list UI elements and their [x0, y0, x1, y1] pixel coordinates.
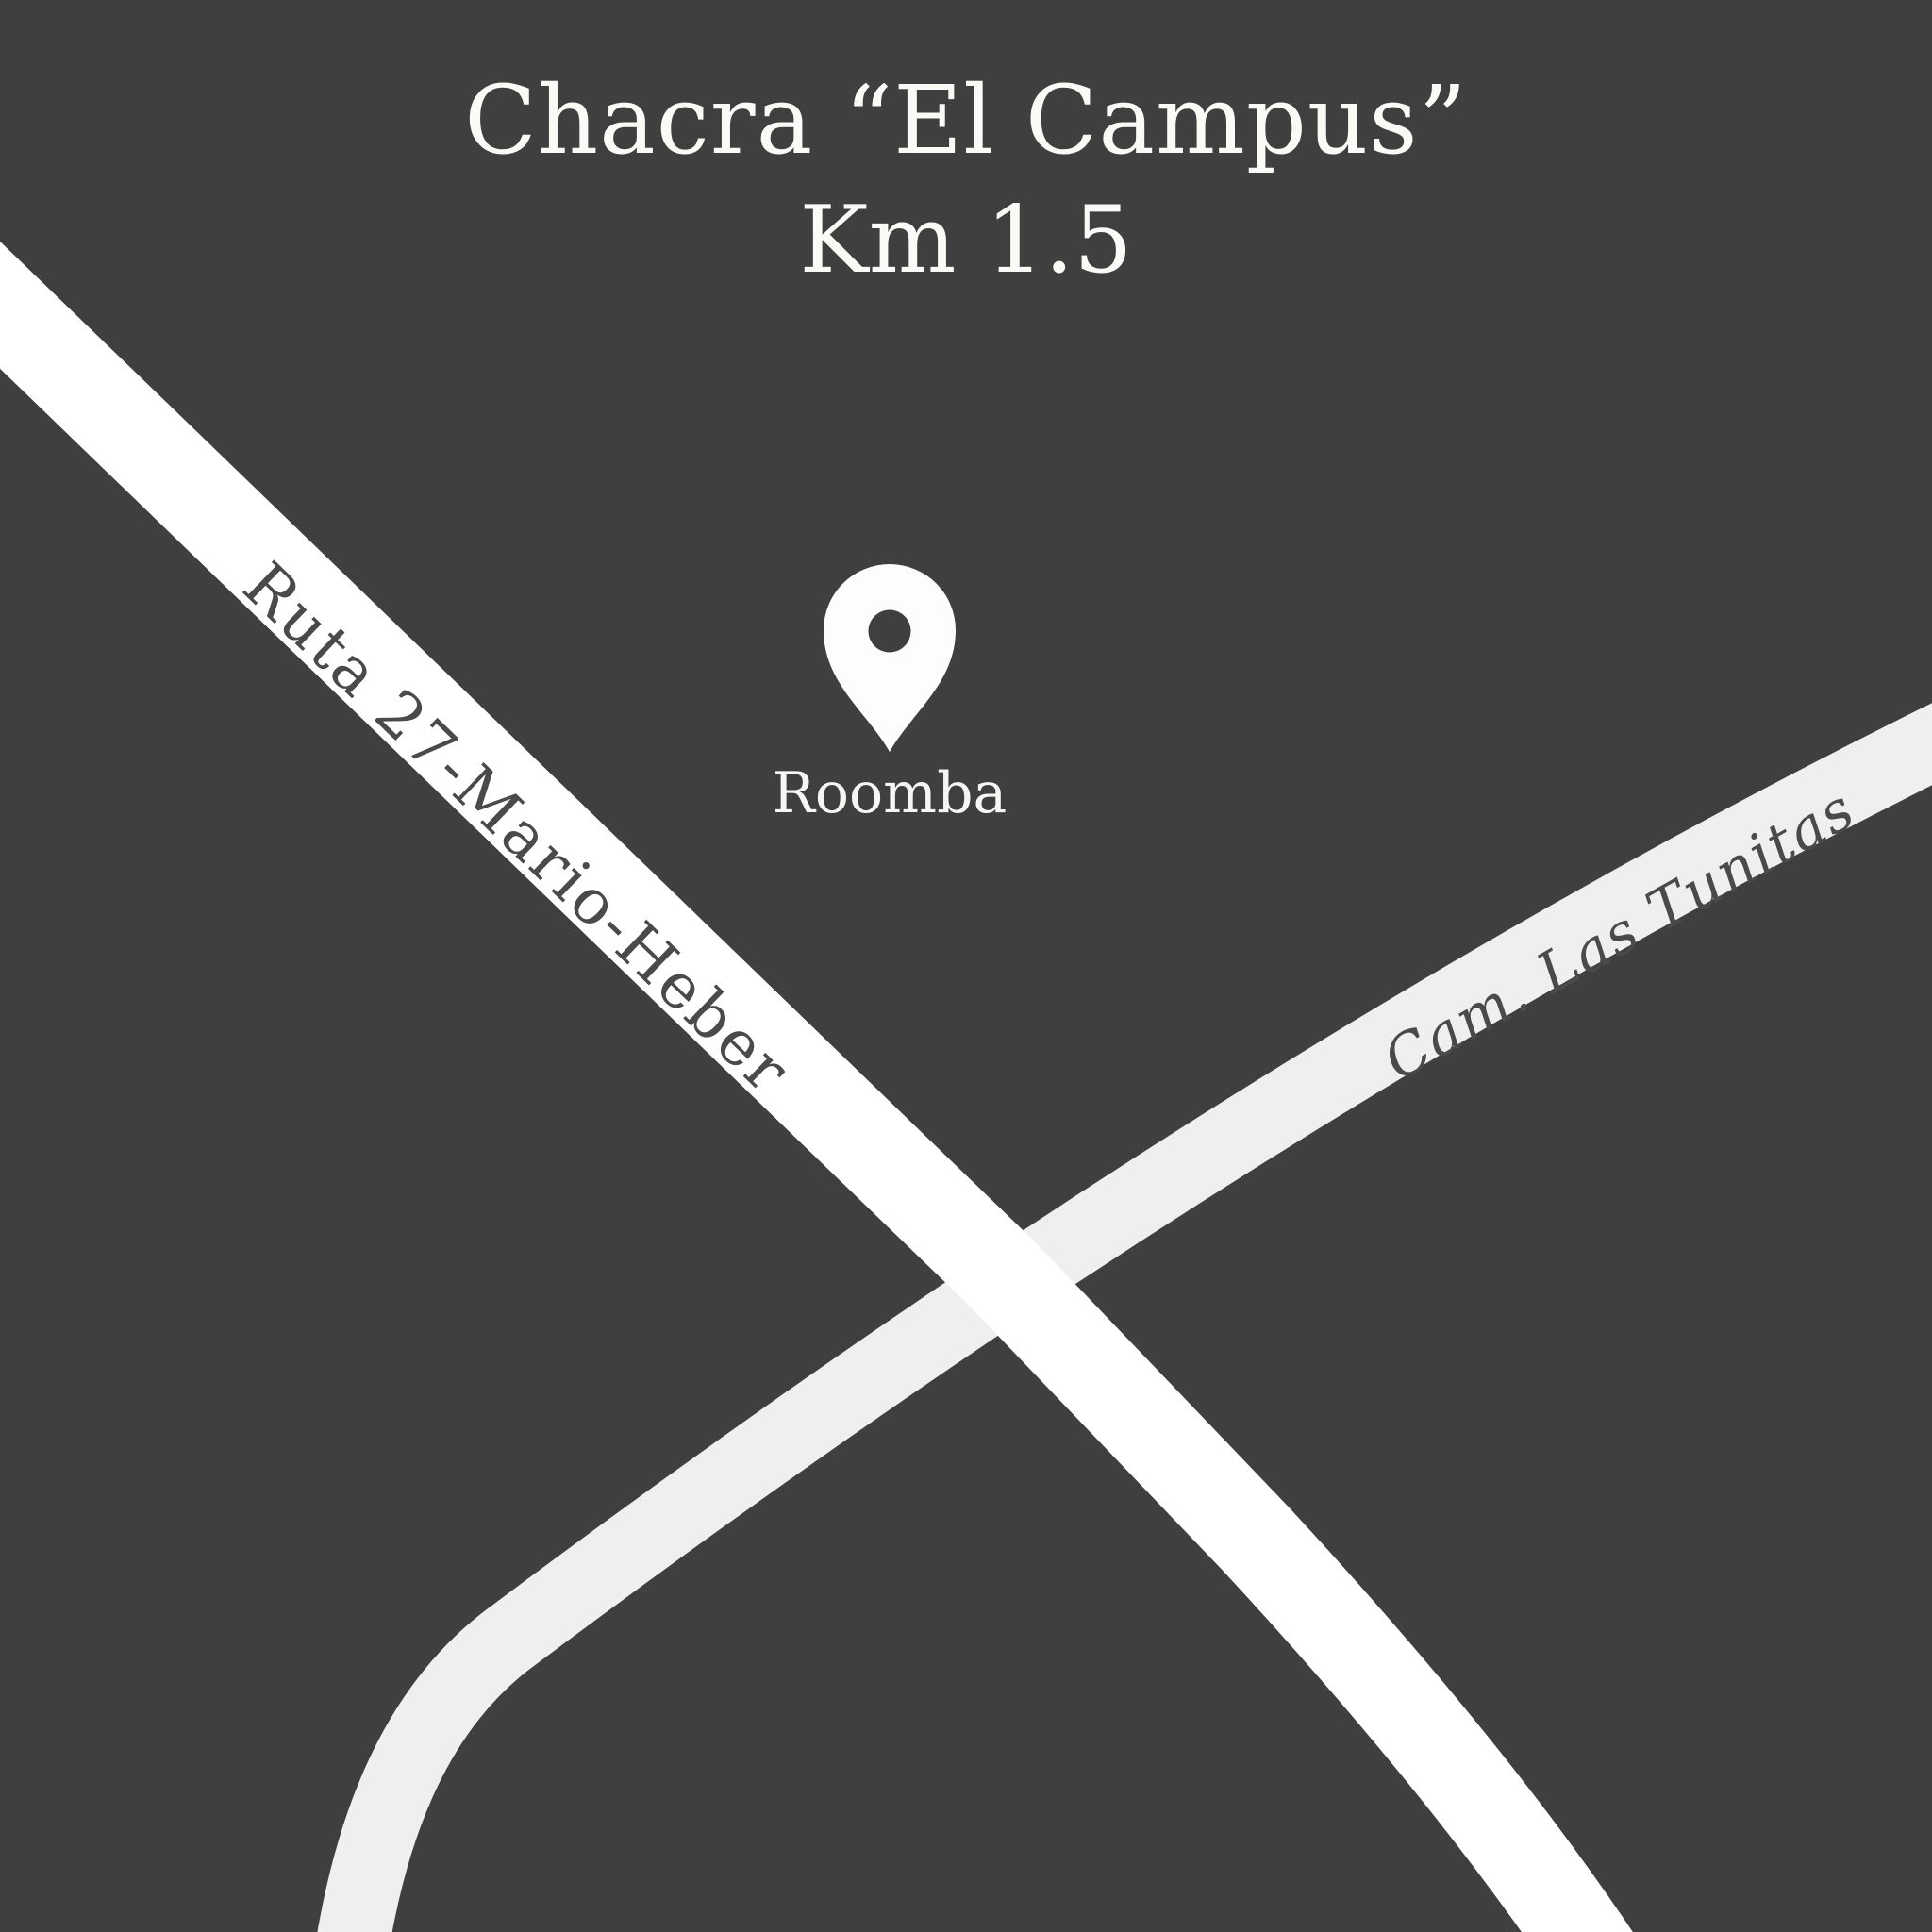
map-title-line1: Chacra “El Campus” — [0, 60, 1932, 181]
map-title-line2: Km 1.5 — [0, 181, 1932, 300]
map-canvas: Chacra “El Campus” Km 1.5 Ruta 27-Mario-… — [0, 0, 1932, 1932]
map-pin-icon — [824, 564, 956, 752]
map-title: Chacra “El Campus” Km 1.5 — [0, 60, 1932, 300]
marker-label: Roomba — [773, 760, 1008, 826]
